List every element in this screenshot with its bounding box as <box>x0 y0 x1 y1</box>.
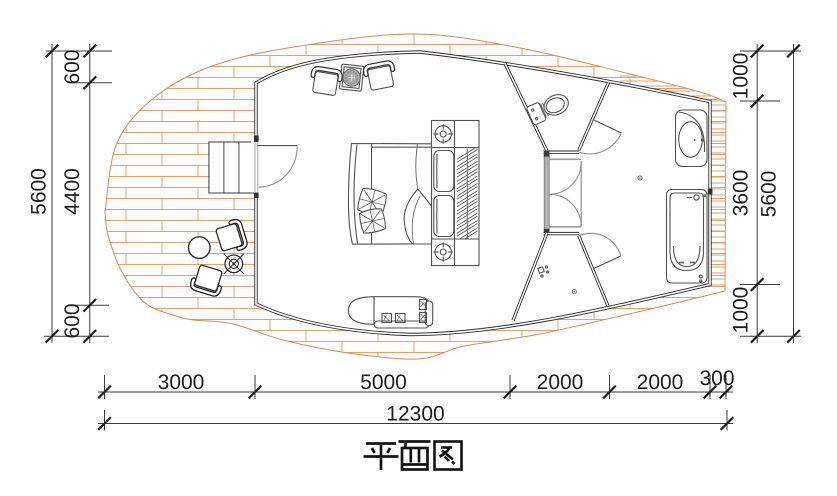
svg-text:5600: 5600 <box>28 168 51 215</box>
svg-text:3000: 3000 <box>158 371 205 394</box>
svg-text:2000: 2000 <box>537 371 584 394</box>
svg-text:12300: 12300 <box>386 403 444 426</box>
svg-text:5600: 5600 <box>758 171 781 218</box>
svg-text:1000: 1000 <box>730 53 753 100</box>
svg-text:600: 600 <box>61 303 84 338</box>
svg-text:4400: 4400 <box>61 168 84 215</box>
svg-text:600: 600 <box>61 49 84 84</box>
svg-text:3600: 3600 <box>730 170 753 217</box>
svg-text:1000: 1000 <box>730 287 753 334</box>
svg-text:5000: 5000 <box>360 371 407 394</box>
svg-text:2000: 2000 <box>637 371 684 394</box>
svg-text:300: 300 <box>699 367 734 390</box>
